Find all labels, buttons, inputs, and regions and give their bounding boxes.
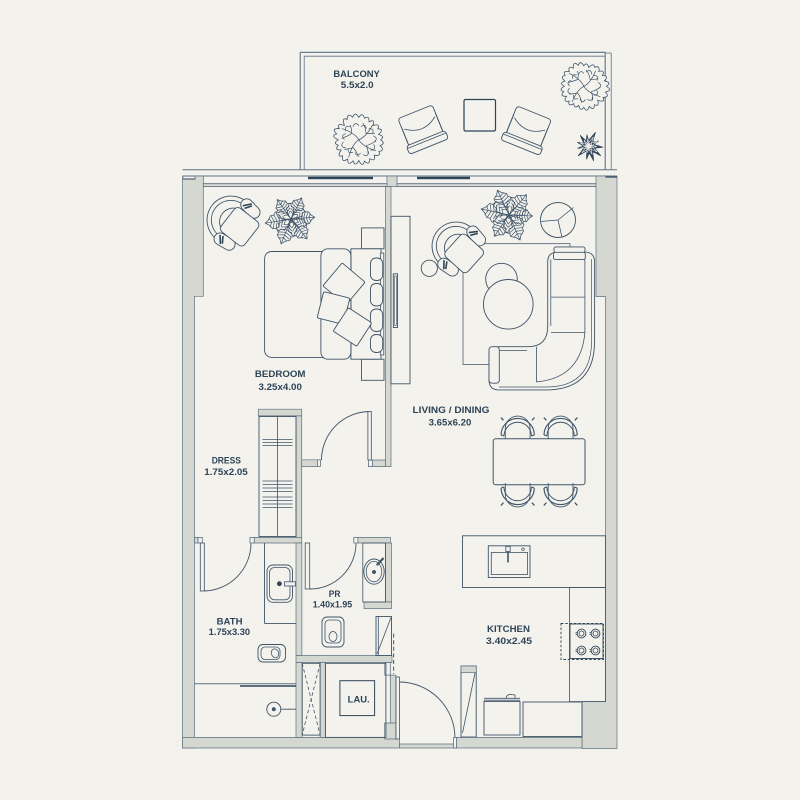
svg-text:1.40x1.95: 1.40x1.95 <box>313 599 352 609</box>
svg-text:1.75x3.30: 1.75x3.30 <box>209 627 250 637</box>
svg-text:DRESS: DRESS <box>212 455 242 466</box>
svg-text:BALCONY: BALCONY <box>333 69 380 80</box>
svg-text:3.65x6.20: 3.65x6.20 <box>429 417 472 427</box>
svg-text:3.25x4.00: 3.25x4.00 <box>259 382 302 392</box>
svg-text:1.75x2.05: 1.75x2.05 <box>204 467 248 477</box>
svg-text:KITCHEN: KITCHEN <box>487 624 530 635</box>
svg-text:LIVING / DINING: LIVING / DINING <box>413 405 490 416</box>
svg-text:BEDROOM: BEDROOM <box>255 369 306 380</box>
svg-text:BATH: BATH <box>217 616 243 627</box>
svg-text:LAU.: LAU. <box>348 694 370 704</box>
svg-text:3.40x2.45: 3.40x2.45 <box>486 636 532 646</box>
svg-text:5.5x2.0: 5.5x2.0 <box>341 80 374 90</box>
